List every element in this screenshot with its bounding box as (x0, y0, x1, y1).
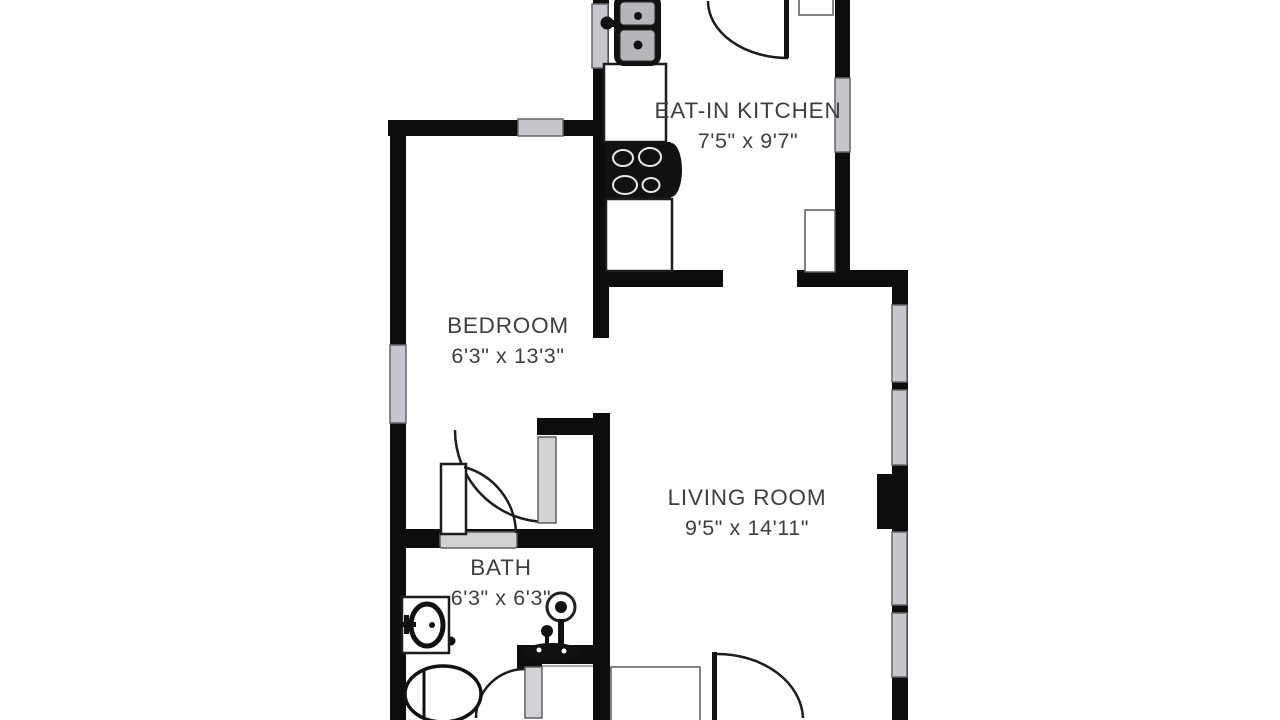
counter-lower (606, 199, 672, 271)
room-dimensions: 6'3" x 13'3" (378, 344, 638, 370)
room-name: BATH (371, 554, 631, 581)
window-living-4 (892, 613, 907, 677)
living-room-door (611, 652, 803, 720)
kitchen-sink (601, 0, 662, 66)
room-dimensions: 7'5" x 9'7" (618, 129, 878, 155)
room-name: LIVING ROOM (617, 484, 877, 511)
shower-knob (541, 625, 553, 637)
door-leaf (784, 0, 789, 58)
window-living-2 (892, 390, 907, 465)
window-kitchen-left (592, 4, 608, 68)
sink-drain (429, 622, 435, 628)
sink-drain-bottom (634, 41, 643, 50)
room-label-living-room: LIVING ROOM 9'5" x 14'11" (617, 484, 877, 542)
kitchen-counter-lower (606, 199, 672, 271)
window-bedroom-top (518, 119, 563, 136)
entry-cabinet (611, 667, 700, 720)
toilet (405, 666, 481, 720)
faucet-knob (601, 17, 614, 30)
room-label-eat-in-kitchen: EAT-IN KITCHEN 7'5" x 9'7" (618, 97, 878, 155)
door-leaf (712, 652, 717, 720)
toilet-bowl (405, 666, 481, 720)
sink-handle (404, 615, 409, 634)
shower-pipe (558, 619, 564, 646)
wall-bedroom-top (388, 120, 608, 136)
door-arc (476, 669, 525, 718)
floor-plan: EAT-IN KITCHEN 7'5" x 9'7" BEDROOM 6'3" … (0, 0, 1280, 720)
room-dimensions: 6'3" x 6'3" (371, 586, 631, 612)
bath-door (440, 464, 517, 548)
room-label-bath: BATH 6'3" x 6'3" (371, 554, 631, 612)
door-leaf (441, 464, 466, 534)
shower-handle (562, 649, 567, 654)
sink-drain-top (634, 12, 642, 20)
shower-valve-base (524, 643, 580, 661)
closet-door (455, 430, 556, 523)
refrigerator (799, 0, 833, 15)
bath-bottom-door (476, 666, 593, 718)
room-name: EAT-IN KITCHEN (618, 97, 878, 124)
room-dimensions: 9'5" x 14'11" (617, 516, 877, 542)
door-leaf (525, 667, 542, 718)
room-label-bedroom: BEDROOM 6'3" x 13'3" (378, 312, 638, 370)
door-arc (717, 654, 803, 718)
door-arc (455, 430, 547, 522)
wall-hall-stub (537, 418, 608, 435)
chimney-bump (877, 474, 895, 529)
wall-kitchen-bottom (593, 270, 723, 287)
wall-cabinet (805, 210, 835, 272)
door-arc (464, 467, 516, 533)
window-living-3 (892, 532, 907, 605)
door-leaf (538, 437, 556, 523)
window-living-1 (892, 305, 907, 382)
room-name: BEDROOM (378, 312, 638, 339)
shower-handle (537, 648, 542, 653)
door-arc (708, 1, 788, 58)
kitchen-entry-door (708, 0, 789, 58)
